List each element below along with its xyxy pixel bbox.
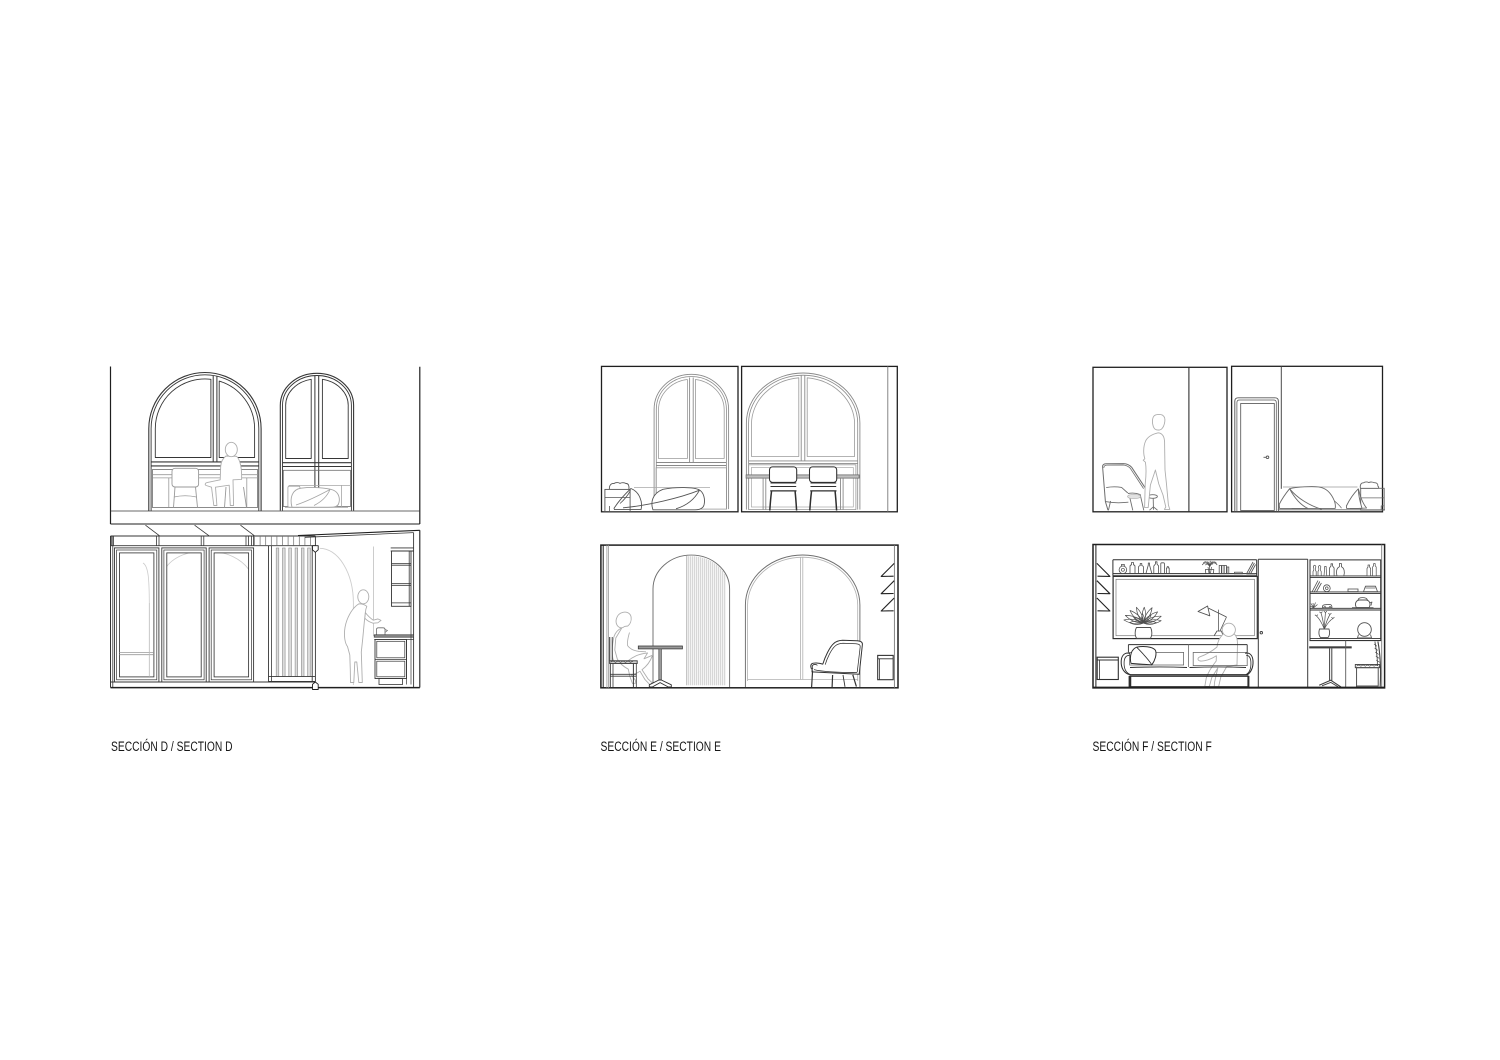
svg-text:SECCIÓN F / SECTION F: SECCIÓN F / SECTION F — [1093, 738, 1212, 755]
svg-text:SECCIÓN D / SECTION D: SECCIÓN D / SECTION D — [111, 738, 233, 755]
svg-text:SECCIÓN E / SECTION E: SECCIÓN E / SECTION E — [601, 738, 721, 755]
